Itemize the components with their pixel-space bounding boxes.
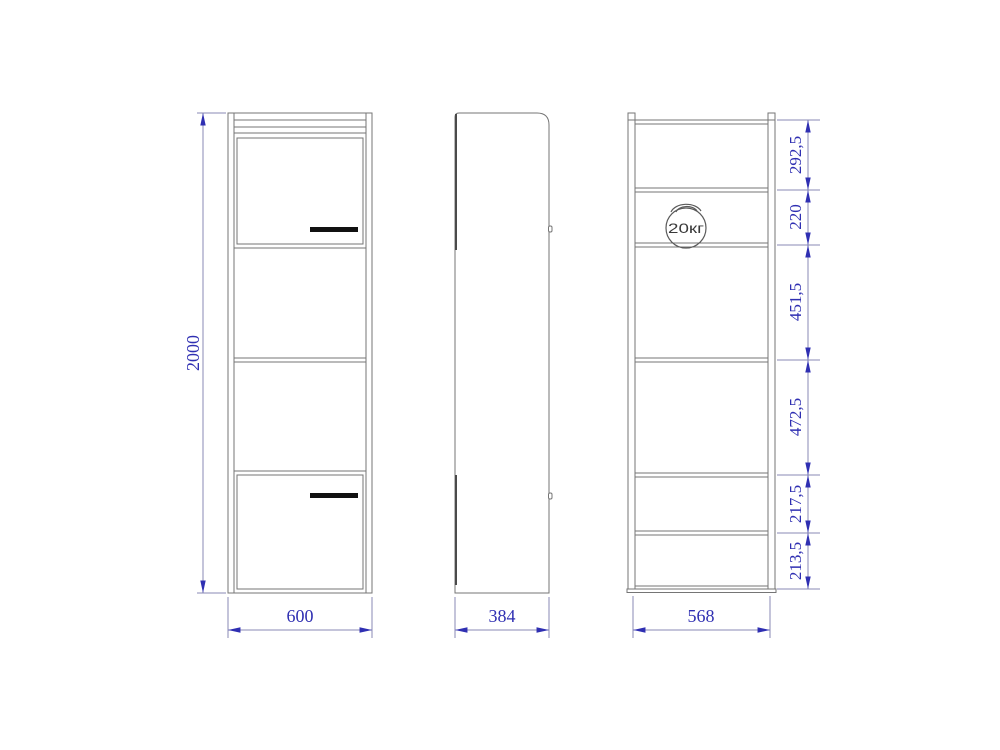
lower-door-handle xyxy=(310,493,358,498)
side-lower-handle-bump xyxy=(549,493,553,499)
front-top-cornice xyxy=(234,120,366,133)
side-upper-handle-bump xyxy=(549,226,553,232)
side-view-cabinet xyxy=(455,113,552,593)
section-dim-6: 213,5 xyxy=(786,542,805,580)
front-width-dim-label: 600 xyxy=(287,606,314,626)
back-shelf-3 xyxy=(635,358,768,362)
dim-section-chain: 292,5 220 451,5 472,5 217,5 213,5 xyxy=(777,120,820,589)
drawing-canvas: 20кг 2000 600 384 568 xyxy=(0,0,1000,750)
front-lower-door xyxy=(237,475,363,589)
back-shelf-1 xyxy=(635,188,768,192)
kettlebell-20kg-icon: 20кг xyxy=(666,204,706,248)
section-dim-3: 451,5 xyxy=(786,283,805,321)
dim-depth-384: 384 xyxy=(455,597,549,638)
section-dim-5: 217,5 xyxy=(786,485,805,523)
front-middle-shelf xyxy=(234,358,366,362)
section-dim-2: 220 xyxy=(786,204,805,230)
back-shelf-4 xyxy=(635,473,768,477)
side-outline xyxy=(455,113,549,593)
back-view-cabinet: 20кг xyxy=(627,113,776,593)
max-load-label: 20кг xyxy=(668,220,704,236)
front-view-cabinet xyxy=(228,113,372,593)
depth-dim-label: 384 xyxy=(489,606,516,626)
dim-height-2000: 2000 xyxy=(183,113,226,593)
back-width-dim-label: 568 xyxy=(688,606,715,626)
front-outer-body xyxy=(228,113,372,593)
back-bottom-plinth xyxy=(627,589,776,593)
back-shelf-5 xyxy=(635,531,768,535)
back-right-side-panel xyxy=(768,113,775,592)
section-dim-4: 472,5 xyxy=(786,398,805,436)
technical-drawing: 20кг 2000 600 384 568 xyxy=(0,0,1000,750)
back-shelf-2 xyxy=(635,243,768,247)
back-left-side-panel xyxy=(628,113,635,592)
dim-width-600: 600 xyxy=(228,597,372,638)
dim-width-568: 568 xyxy=(633,596,770,638)
upper-door-handle xyxy=(310,227,358,232)
height-dim-label: 2000 xyxy=(183,335,203,371)
section-dim-1: 292,5 xyxy=(786,136,805,174)
back-top-panel xyxy=(628,120,775,124)
